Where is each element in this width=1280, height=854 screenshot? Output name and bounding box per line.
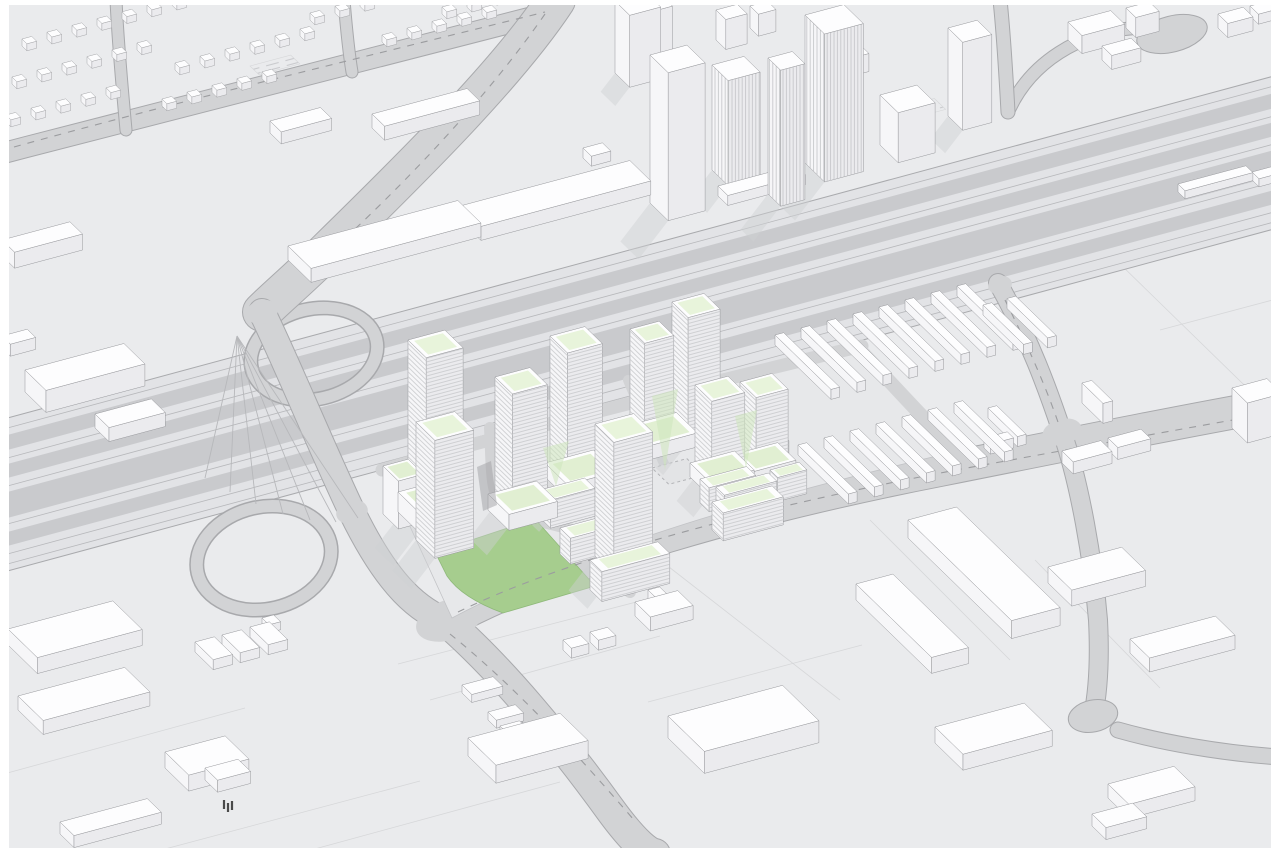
- floor-lines: [595, 424, 614, 574]
- top-right-road: [1000, 0, 1008, 112]
- frame-border: [0, 0, 9, 854]
- facade-sw: [948, 28, 963, 130]
- building: [716, 4, 747, 49]
- frame-border: [0, 0, 1280, 5]
- mullion-lines: [825, 24, 864, 182]
- building: [750, 1, 776, 36]
- mullion-lines: [805, 15, 825, 182]
- facade-sw: [650, 55, 668, 221]
- floor-lines: [435, 430, 474, 558]
- facade-se: [726, 14, 747, 50]
- floor-lines: [416, 422, 435, 558]
- facade-se: [668, 63, 705, 221]
- facade-se: [898, 103, 935, 163]
- facade-se: [963, 35, 992, 131]
- existing-midrise: [880, 85, 935, 163]
- mullion-lines: [728, 72, 760, 186]
- scene-root: [0, 0, 1280, 854]
- frame-border: [0, 848, 1280, 854]
- mullion-lines: [712, 65, 728, 186]
- building: [1126, 2, 1159, 38]
- mullion-lines: [768, 58, 781, 206]
- facade-sw: [615, 1, 630, 87]
- facade-se: [1103, 401, 1113, 424]
- frame-border: [1271, 0, 1280, 854]
- city-massing-scene: [0, 0, 1280, 854]
- mullion-lines: [781, 64, 805, 207]
- axonometric-site-rendering: [0, 0, 1280, 854]
